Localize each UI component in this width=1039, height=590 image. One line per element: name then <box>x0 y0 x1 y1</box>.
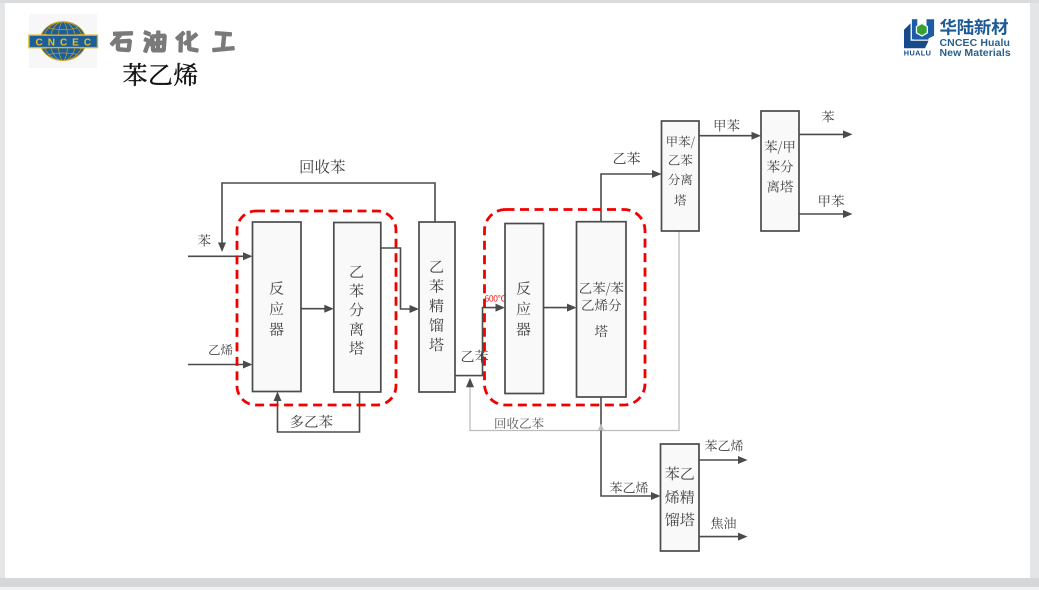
svg-text:HUALU: HUALU <box>904 48 932 57</box>
svg-text:New Materials: New Materials <box>940 47 1011 59</box>
svg-text:CNCEC: CNCEC <box>36 37 97 48</box>
